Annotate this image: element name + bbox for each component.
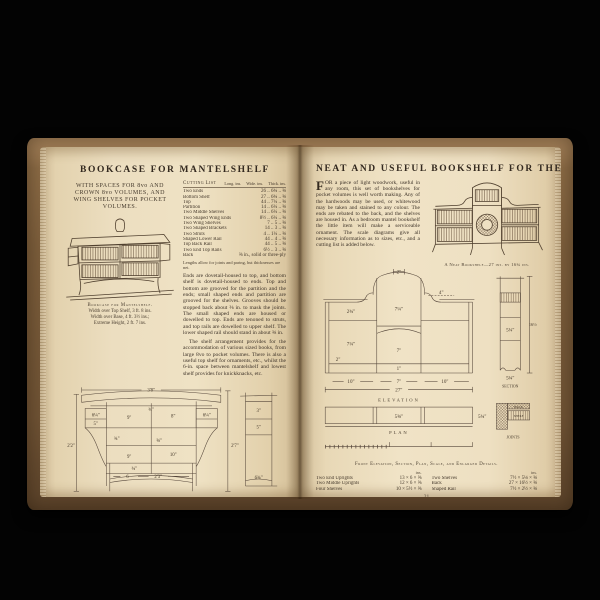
dim-label: 6¼" — [203, 413, 211, 418]
left-page-title: BOOKCASE FOR MANTELSHELF — [64, 165, 286, 175]
col-header-long: Long. ins. — [224, 181, 241, 186]
caption-dim-line: Extreme Height, 2 ft. 7 ins. — [64, 321, 176, 327]
joints-label: JOINTS — [507, 435, 520, 439]
elevation-line-art — [74, 387, 278, 497]
dim-label: ¾" — [132, 467, 138, 472]
intro-text: OR a piece of light woodwork, useful in … — [316, 180, 420, 248]
elevation-label: ELEVATION — [378, 398, 420, 403]
dim-label: 7" — [397, 379, 402, 385]
dim-label: 2" — [397, 270, 402, 276]
cutting-list-row: Back ⅜ in., solid or three-ply — [183, 253, 286, 258]
dim-label: 27" — [395, 387, 402, 393]
joint-part-label: BACK — [514, 405, 523, 409]
plan-label: PLAN — [389, 430, 408, 435]
col-header-wide: Wide. ins. — [246, 181, 263, 186]
item-name: Four Shelves — [316, 487, 342, 493]
front-elevation-diagram: 3'8" ¾" 6¼" 5" 9" 8" 6¼" ¾" ⅝" 9" 10" ¾"… — [64, 382, 286, 497]
cutting-list-note: Lengths allow for joints and paring, but… — [183, 260, 286, 270]
dim-label: 8" — [171, 414, 175, 419]
cutting-list-rows: Two Ends 26 .. 6¾ .. ⅝ Bottom Shelf 27 .… — [183, 189, 286, 258]
joint-part-label: SHELF — [514, 414, 524, 418]
dim-label: ⅝" — [156, 439, 162, 444]
dim-label: 5" — [256, 426, 260, 431]
dim-label: 2'3" — [154, 475, 162, 480]
dim-label: 9" — [127, 416, 131, 421]
cutting-list-row: Four Shelves 10 × 5½ × ⅝ — [316, 487, 422, 493]
dim-label: 5⅝" — [395, 414, 403, 420]
col-header-thick: Thick. ins. — [268, 181, 286, 186]
dim-label: 10" — [347, 379, 354, 385]
drop-cap: F — [316, 180, 324, 191]
dim-label: 16½" — [529, 322, 537, 327]
dim-label: ¾" — [148, 408, 154, 413]
item-dimensions: ⅜ in., solid or three-ply — [239, 253, 286, 258]
right-page-title: NEAT AND USEFUL BOOKSHELF FOR THE BEDROO… — [316, 164, 537, 174]
body-paragraph-1: Ends are dovetail-housed to top, and bot… — [183, 273, 286, 336]
cutting-list-table: Cutting List Long. ins. Wide. ins. Thick… — [183, 181, 286, 258]
photo-background: BOOKCASE FOR MANTELSHELF WITH SPACES FOR… — [0, 0, 600, 600]
dim-label: 7" — [397, 348, 402, 354]
bookcase-perspective-illustration — [66, 215, 174, 301]
left-page: BOOKCASE FOR MANTELSHELF WITH SPACES FOR… — [40, 147, 300, 497]
dim-label: 9" — [127, 455, 131, 460]
cutting-list-rows: Two Shelves 7½ × 5⅛ × ⅝ Back 27 × 16½ × … — [432, 476, 538, 493]
dim-label: 2'2" — [67, 444, 75, 449]
dim-label: 1" — [397, 366, 402, 372]
dim-label: 2" — [336, 357, 341, 363]
item-dimensions: 7½ × 2½ × ⅝ — [510, 487, 537, 493]
right-intro-paragraph: FOR a piece of light woodwork, useful in… — [316, 180, 420, 267]
dim-label: 4" — [439, 290, 444, 296]
dim-label: 6¾" — [255, 476, 263, 481]
left-subtitle: WITH SPACES FOR 8vo AND CROWN 8vo VOLUME… — [66, 183, 174, 211]
diagram-line-art — [323, 269, 532, 447]
body-paragraph-2: The shelf arrangement provides for the a… — [183, 339, 286, 377]
item-name: Back — [183, 253, 193, 258]
item-dimensions: 10 × 5½ × ⅝ — [396, 487, 422, 493]
cutting-list-title: Cutting List — [183, 181, 216, 186]
dim-label: 6 — [126, 475, 129, 480]
right-page-number: 21 — [316, 494, 537, 497]
bookshelf-perspective-illustration — [426, 180, 548, 256]
dim-label: 5¼" — [506, 328, 514, 334]
dim-label: 3" — [256, 409, 260, 414]
cutting-list-row: Shaped Rail 7½ × 2½ × ⅝ — [432, 487, 538, 493]
bookshelf-line-art — [432, 183, 542, 255]
right-page: NEAT AND USEFUL BOOKSHELF FOR THE BEDROO… — [300, 147, 561, 497]
dim-label: 2¾" — [347, 308, 355, 315]
left-illustration-caption: Bookcase for Mantelshelf. Width over Top… — [64, 303, 176, 327]
dim-label: 7¼" — [347, 341, 355, 347]
dim-label: 6¼" — [92, 413, 100, 418]
left-diagram-block: 3'8" ¾" 6¼" 5" 9" 8" 6¼" ¾" ⅝" 9" 10" ¾"… — [64, 382, 286, 497]
dim-label: 7¼" — [395, 306, 403, 312]
right-cutting-list: ins. Two End Uprights 13 × 6 × ⅝ Two Mid… — [316, 470, 537, 492]
dim-label: 10" — [170, 453, 177, 458]
section-label: SECTION — [502, 385, 519, 389]
cutting-list-header: Cutting List Long. ins. Wide. ins. Thick… — [183, 181, 286, 188]
right-diagram-caption: Front Elevation, Section, Plan, Scale, a… — [316, 462, 537, 467]
elevation-dimension-labels: 3'8" ¾" 6¼" 5" 9" 8" 6¼" ¾" ⅝" 9" 10" ¾"… — [67, 389, 282, 497]
bookshelf-scale-diagrams: 2" 7¼" 4" 2¾" 7¼" 7" 2" 1" 10" 7" 10" 27… — [316, 267, 537, 456]
dim-label: 5¾" — [478, 413, 486, 420]
item-name: Shaped Rail — [432, 487, 456, 493]
bookcase-line-art — [66, 219, 174, 300]
dim-label: ¾" — [114, 437, 120, 442]
dim-label: 5" — [94, 422, 98, 427]
dim-label: 3'8" — [147, 389, 155, 394]
cutting-list-rows: Two End Uprights 13 × 6 × ⅝ Two Middle U… — [316, 476, 422, 493]
dim-label: 10" — [441, 379, 448, 385]
dim-label: 2'7" — [231, 444, 239, 449]
dim-label: 5¾" — [506, 374, 514, 381]
